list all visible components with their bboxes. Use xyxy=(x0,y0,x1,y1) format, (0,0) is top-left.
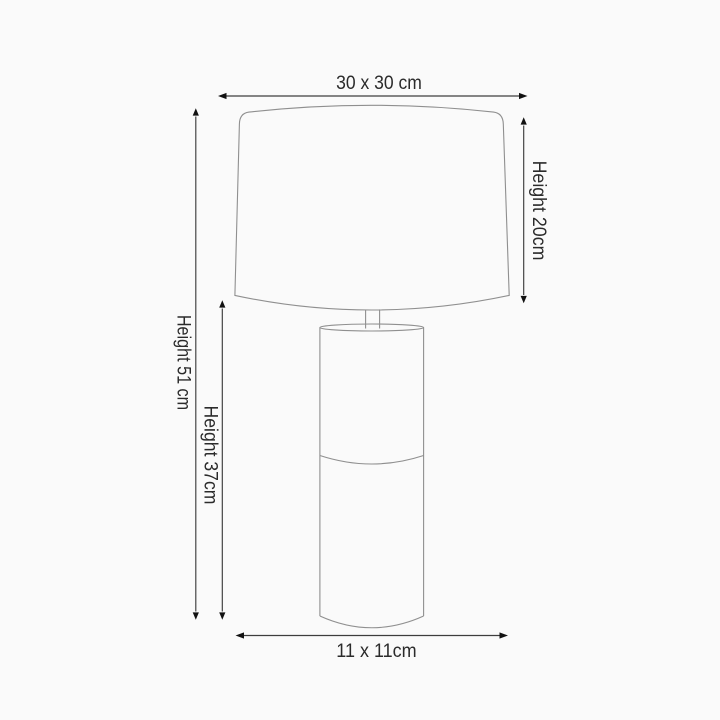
svg-text:30 x 30 cm: 30 x 30 cm xyxy=(336,72,422,94)
svg-text:11 x 11cm: 11 x 11cm xyxy=(336,640,416,662)
svg-text:Height 37cm: Height 37cm xyxy=(199,406,221,505)
svg-text:Height 51 cm: Height 51 cm xyxy=(173,315,195,410)
svg-text:Height 20cm: Height 20cm xyxy=(528,161,550,261)
